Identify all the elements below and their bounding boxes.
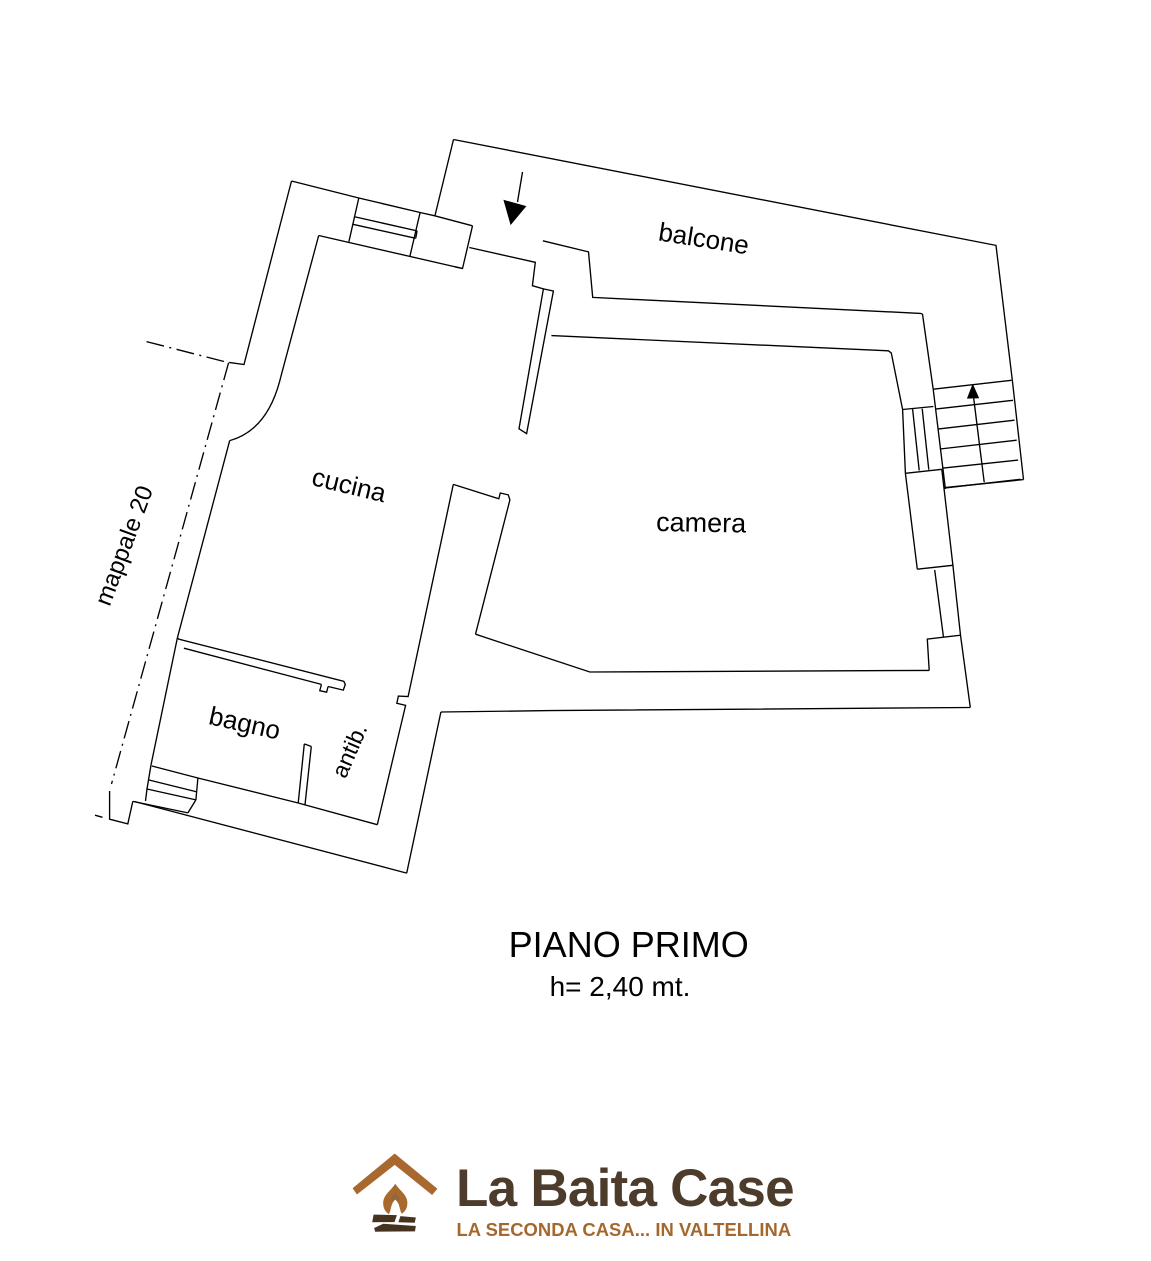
svg-text:LA SECONDA CASA... IN VALTELLI: LA SECONDA CASA... IN VALTELLINA — [457, 1219, 792, 1240]
svg-text:antib.: antib. — [326, 720, 372, 782]
svg-text:balcone: balcone — [657, 216, 752, 260]
svg-text:camera: camera — [656, 507, 748, 539]
svg-text:cucina: cucina — [309, 461, 390, 508]
svg-text:PIANO PRIMO: PIANO PRIMO — [509, 924, 749, 965]
svg-text:h= 2,40 mt.: h= 2,40 mt. — [550, 971, 691, 1002]
svg-text:La Baita Case: La Baita Case — [456, 1159, 794, 1218]
svg-text:mappale 20: mappale 20 — [90, 482, 159, 609]
svg-text:bagno: bagno — [206, 700, 283, 745]
